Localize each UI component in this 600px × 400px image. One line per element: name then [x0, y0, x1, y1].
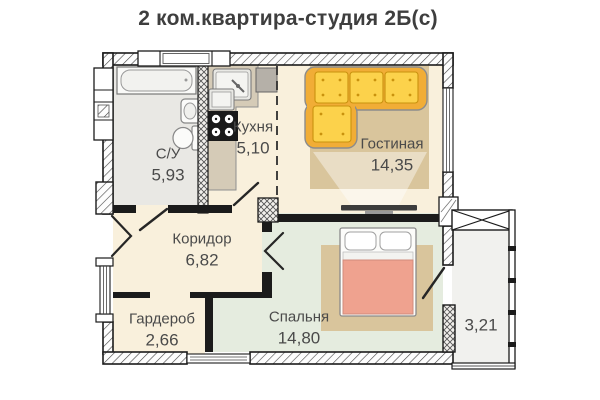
- exterior-wall-bottom: [103, 352, 187, 364]
- wall-segment: [262, 222, 272, 232]
- wall-segment: [113, 205, 136, 213]
- vent-shaft: [94, 68, 113, 140]
- window: [187, 354, 250, 363]
- wall-segment: [508, 310, 516, 315]
- wall-segment: [168, 205, 232, 213]
- wall-segment: [262, 272, 272, 292]
- room-area: 14,80: [269, 328, 329, 351]
- room-label-bathroom: С/У 5,93: [151, 144, 184, 187]
- bed-icon: [340, 228, 416, 316]
- room-name: Гардероб: [129, 309, 195, 329]
- room-name: Коридор: [172, 229, 231, 249]
- wall-pier: [443, 305, 455, 352]
- exterior-wall-bottom: [250, 352, 453, 364]
- room-area: 5,93: [151, 165, 184, 188]
- wall-segment: [508, 278, 516, 283]
- room-label-bedroom: Спальня 14,80: [269, 307, 329, 350]
- room-label-kitchen: Кухня 5,10: [233, 117, 273, 160]
- room-name: Кухня: [233, 117, 273, 137]
- room-name: Гостиная: [361, 134, 424, 154]
- plan-title: 2 ком.квартира-студия 2Б(с): [0, 7, 576, 31]
- room-name: С/У: [151, 144, 184, 164]
- wall-segment: [508, 342, 516, 347]
- room-label-balcony: 3,21: [464, 315, 497, 338]
- window: [443, 88, 453, 172]
- wall-wardrobe-bedroom: [205, 292, 213, 352]
- wall-segment: [113, 292, 150, 298]
- balcony-glazing: [452, 210, 512, 230]
- exterior-wall-right: [443, 172, 453, 199]
- wall-pier: [96, 182, 113, 214]
- room-label-living: Гостиная 14,35: [361, 134, 424, 177]
- bathtub-icon: [117, 67, 196, 94]
- room-label-corridor: Коридор 6,82: [172, 229, 231, 272]
- fridge-icon: [256, 68, 277, 92]
- room-name: Спальня: [269, 307, 329, 327]
- exterior-wall-left: [103, 322, 113, 354]
- floor-plan: 2 ком.квартира-студия 2Б(с) С/У 5,93 Кух…: [0, 0, 600, 400]
- vent-shaft: [138, 51, 230, 66]
- room-area: 5,10: [233, 138, 273, 161]
- wall-segment: [508, 246, 516, 251]
- floor-balcony: [452, 228, 512, 364]
- exterior-wall-right: [443, 53, 453, 88]
- room-area: 2,66: [129, 330, 195, 353]
- wall-bath-kitchen: [198, 64, 208, 213]
- wall-living-bedroom: [278, 214, 443, 222]
- window: [96, 258, 113, 322]
- wall-pier: [258, 198, 278, 222]
- wall-segment: [190, 292, 272, 298]
- balcony-wall-bottom: [452, 363, 515, 369]
- room-area: 14,35: [361, 155, 424, 178]
- room-area: 3,21: [464, 315, 497, 338]
- exterior-wall-right: [443, 226, 453, 265]
- room-area: 6,82: [172, 250, 231, 273]
- room-label-wardrobe: Гардероб 2,66: [129, 309, 195, 352]
